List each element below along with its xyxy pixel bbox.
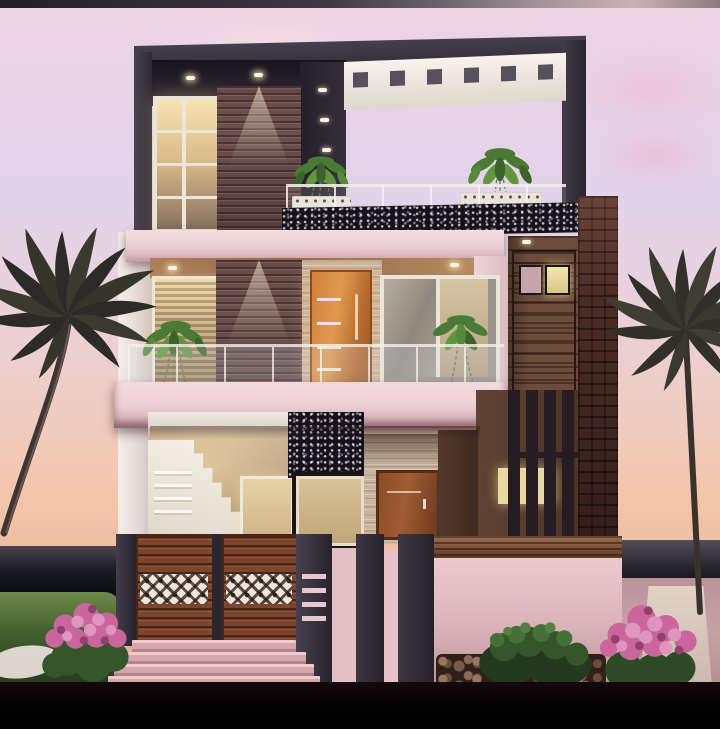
architectural-render <box>0 0 720 729</box>
granite-column <box>288 412 364 478</box>
door-stripe <box>387 491 421 493</box>
step <box>114 664 314 676</box>
gate-leaf-right <box>222 534 300 650</box>
louver-rail <box>508 452 578 458</box>
fence-pink-panel <box>384 550 398 686</box>
ceiling-spotlight <box>254 73 263 77</box>
roof-column-left <box>134 52 152 236</box>
wall-washer-light <box>320 118 329 122</box>
pier-vent-slit <box>302 574 326 579</box>
flower-shrub-right <box>576 582 716 692</box>
cloud <box>598 125 713 185</box>
step <box>122 652 306 664</box>
cloud <box>575 52 720 127</box>
palm-tree-left <box>0 228 178 553</box>
ceiling-spotlight <box>186 76 195 80</box>
flower-shrub-left <box>36 576 140 684</box>
ceiling-spotlight <box>450 263 459 267</box>
door-stripe <box>317 322 341 325</box>
fence-pink-panel <box>332 548 356 686</box>
top-floor-window <box>153 96 225 244</box>
pier-vent-slit <box>302 616 326 621</box>
wall-washer-light <box>318 88 327 92</box>
step <box>132 640 296 652</box>
ceiling-spotlight <box>522 240 531 244</box>
pier-vent-slit <box>302 588 326 593</box>
underslab-shadow <box>150 426 480 439</box>
pergola-slab <box>344 53 566 110</box>
door-handle <box>423 499 426 509</box>
palm-tree-right <box>600 240 720 620</box>
ground-floor-door <box>376 470 440 540</box>
gate-lattice-band <box>226 574 292 604</box>
dark-wood-strip <box>438 430 478 544</box>
door-fanlight-left <box>519 265 543 295</box>
letterbox-bottom <box>0 682 720 729</box>
fence-dark-pier <box>356 534 384 686</box>
downlight-cone <box>223 260 295 356</box>
door-fanlight-right <box>545 265 570 295</box>
gate-lattice-band <box>140 574 208 604</box>
wall-coping <box>432 536 622 558</box>
louver-screen <box>508 390 578 542</box>
letterbox-top <box>0 0 720 8</box>
fence-dark-pier <box>398 534 434 686</box>
gate-mid-post <box>212 534 222 646</box>
pier-vent-slit <box>302 602 326 607</box>
door-stripe <box>317 298 341 301</box>
door-handle <box>355 294 358 340</box>
service-door <box>512 250 576 404</box>
